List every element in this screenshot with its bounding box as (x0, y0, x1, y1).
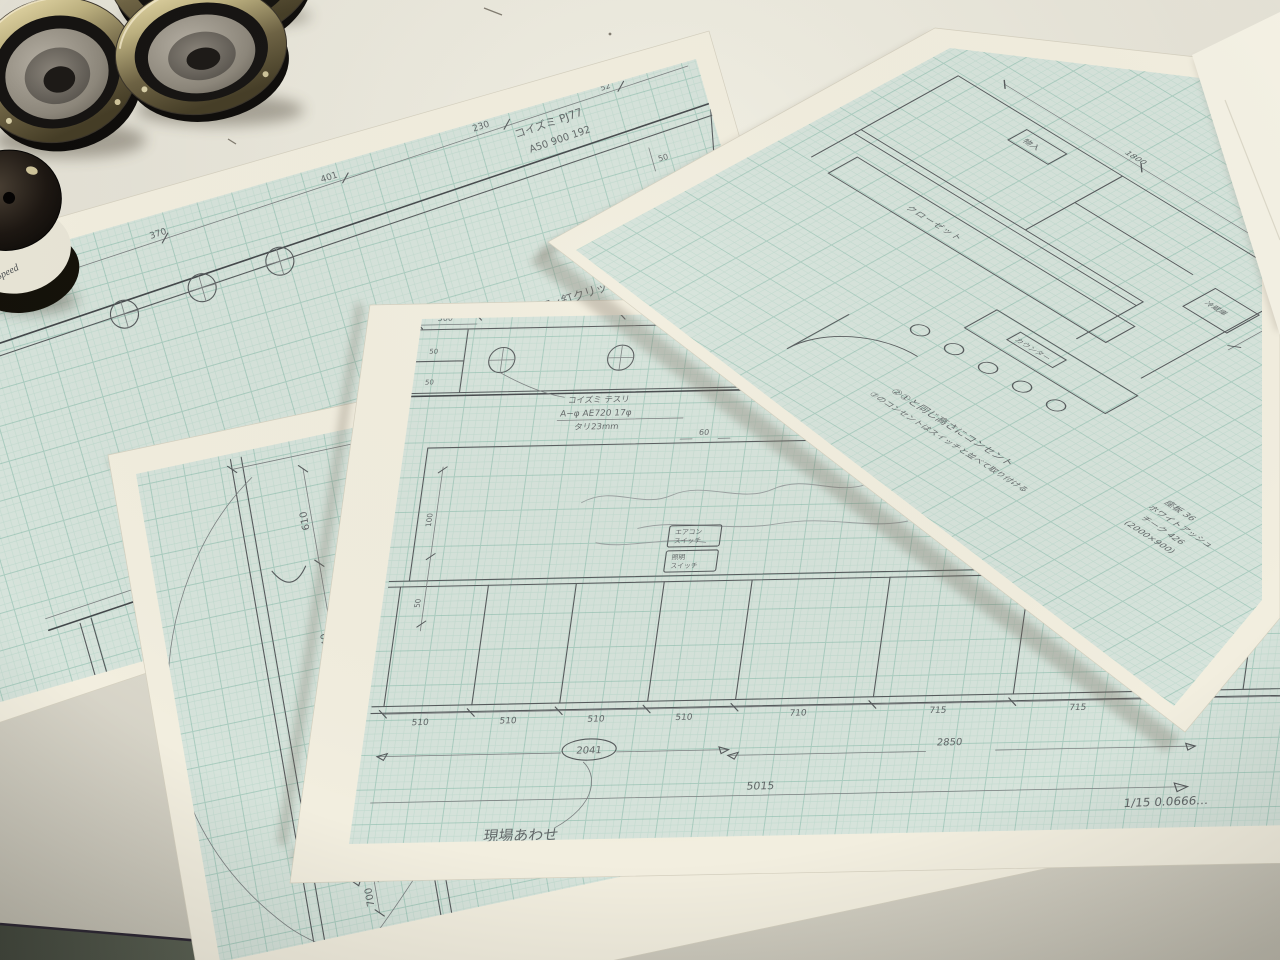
photo-scene: コイズミ PJ77 A50 900 192 370 401 230 52 (0, 0, 1280, 960)
vignette (0, 0, 1280, 960)
photo-canvas: コイズミ PJ77 A50 900 192 370 401 230 52 (0, 0, 1280, 960)
